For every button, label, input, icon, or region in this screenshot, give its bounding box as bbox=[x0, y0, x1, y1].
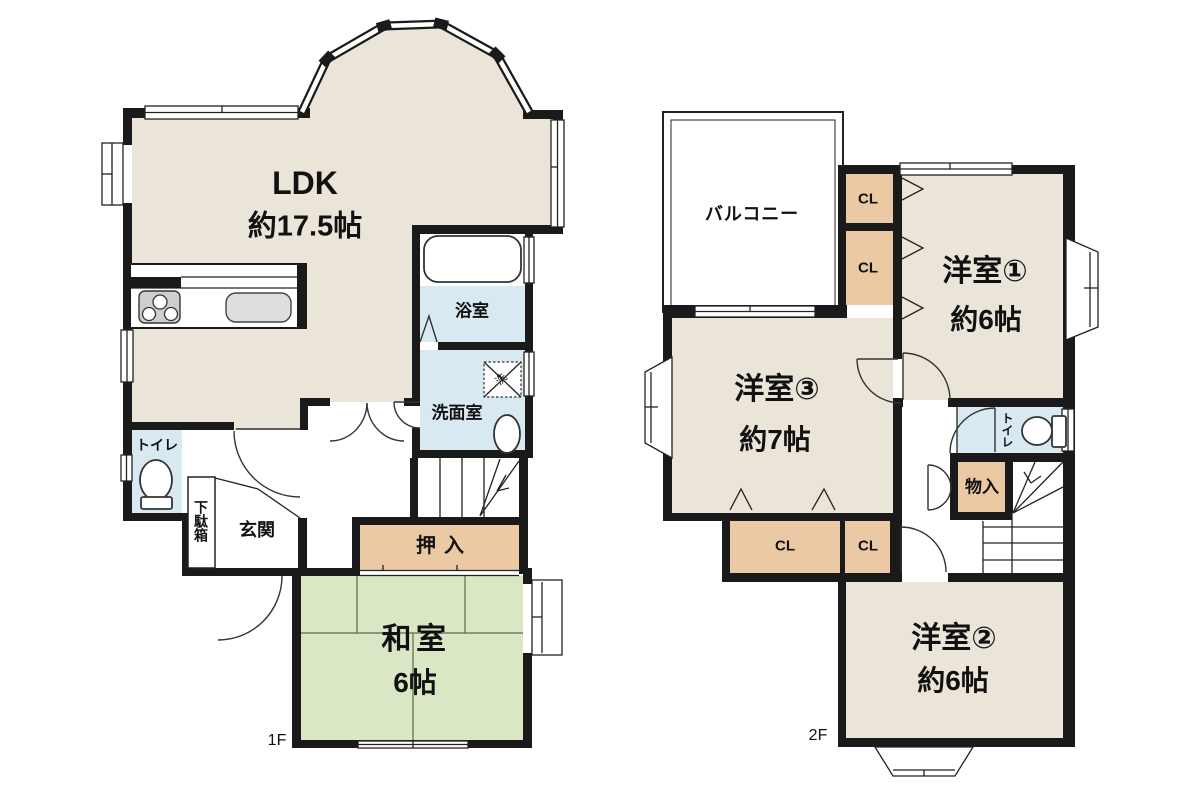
monoire-doors bbox=[928, 465, 951, 510]
yoshitsu2-door bbox=[901, 527, 946, 572]
yoshitsu2-bay-window bbox=[875, 747, 973, 776]
yoshitsu2-floor bbox=[846, 582, 1063, 738]
ldk-double-door bbox=[330, 403, 404, 441]
cl-b-label: CL bbox=[858, 261, 878, 276]
ldk-label: LDK bbox=[272, 167, 338, 199]
yoshitsu3-floor bbox=[672, 318, 893, 513]
kitchen-counter bbox=[130, 264, 306, 328]
floorplan-page: LDK 約17.5帖 浴室 洗面室 洗 トイレ 下駄箱 玄関 押入 和室 6帖 … bbox=[0, 0, 1200, 796]
toilet-1f-icon bbox=[140, 460, 172, 509]
getabako-label: 下駄箱 bbox=[194, 500, 208, 542]
washitsu-size-label: 6帖 bbox=[393, 669, 437, 697]
hall-door bbox=[234, 429, 300, 497]
genkan-label: 玄関 bbox=[239, 521, 275, 539]
washbasin-icon bbox=[494, 415, 520, 453]
yoshitsu1-label: 洋室① bbox=[942, 257, 1027, 287]
floor2-label: 2F bbox=[809, 728, 828, 744]
yoshitsu1-size-label: 約6帖 bbox=[950, 306, 1022, 334]
bath-label: 浴室 bbox=[455, 303, 489, 320]
cl-c-label: CL bbox=[775, 539, 795, 554]
stairs-1f bbox=[440, 458, 519, 517]
yoshitsu1-bay-window bbox=[1066, 238, 1098, 340]
yoshitsu3-bay-window bbox=[645, 357, 672, 458]
monoire-label: 物入 bbox=[965, 479, 999, 496]
balcony-label: バルコニー bbox=[705, 205, 799, 223]
bathtub-icon bbox=[424, 236, 521, 282]
toilet-2f-label: トイレ bbox=[1001, 412, 1013, 448]
cl-a-label: CL bbox=[858, 192, 878, 207]
yoshitsu2-size-label: 約6帖 bbox=[917, 667, 989, 695]
washitsu-floor bbox=[301, 576, 523, 740]
kitchen-sink-icon bbox=[226, 293, 291, 322]
washitsu-label: 和室 bbox=[382, 625, 451, 655]
floor-1f bbox=[102, 17, 564, 748]
floor1-label: 1F bbox=[268, 733, 287, 749]
stove-icon bbox=[139, 291, 180, 323]
entrance-door-arc bbox=[218, 576, 282, 640]
yoshitsu2-label: 洋室② bbox=[911, 624, 996, 654]
yoshitsu3-size-label: 約7帖 bbox=[739, 426, 811, 454]
ldk-size-label: 約17.5帖 bbox=[248, 213, 362, 242]
washroom-label: 洗面室 bbox=[432, 405, 483, 422]
genkan-step-line bbox=[215, 478, 300, 518]
cl-d-label: CL bbox=[858, 539, 878, 554]
toilet-1f-label: トイレ bbox=[136, 438, 178, 452]
yoshitsu3-label: 洋室③ bbox=[734, 375, 819, 405]
oshiire-label: 押入 bbox=[416, 536, 472, 556]
floorplan-canvas bbox=[0, 0, 1200, 796]
toilet-2f-icon bbox=[1022, 416, 1066, 447]
